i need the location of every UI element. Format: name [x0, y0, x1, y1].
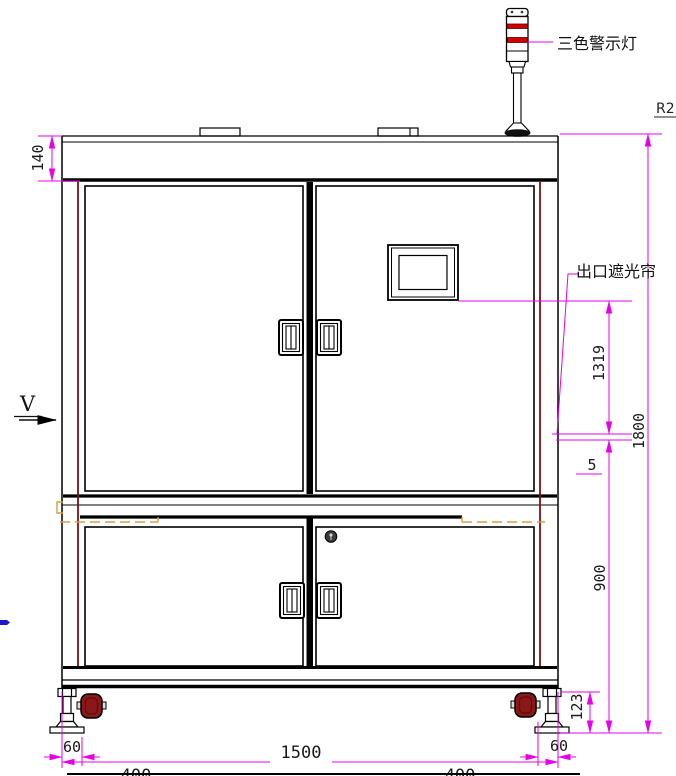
- beacon-red-band: [507, 38, 527, 43]
- right-leveling-foot: [535, 689, 569, 734]
- tower-light-label: 三色警示灯: [557, 34, 637, 53]
- upper-right-door: [316, 186, 534, 491]
- lower-center-post: [307, 517, 314, 667]
- dim-overall-width: 1500: [281, 743, 322, 763]
- handle-lower-left: [280, 583, 304, 618]
- blue-edge-mark: [0, 620, 10, 625]
- dim-left-offset: 60: [63, 738, 81, 756]
- beacon-cap-dot: [511, 11, 514, 14]
- left-leveling-foot: [50, 689, 84, 734]
- dim-overall-height: 1800: [630, 413, 648, 449]
- dim-lower-span: 900: [591, 564, 609, 591]
- left-caster-wheel: [77, 694, 106, 718]
- top-fitting: [378, 128, 418, 136]
- handle-upper-right: [317, 320, 341, 355]
- corner-note-label: R2: [656, 101, 675, 117]
- dimension-lines: [38, 134, 662, 768]
- handle-lower-right: [317, 583, 341, 618]
- dim-upper-span: 1319: [590, 345, 608, 381]
- view-marker-label: V: [19, 392, 36, 416]
- handle-upper-left: [279, 320, 303, 355]
- right-caster-wheel: [511, 693, 540, 717]
- beacon-adapter-base: [512, 67, 524, 73]
- beacon-pole: [514, 73, 522, 123]
- dim-top-band: 140: [29, 144, 47, 171]
- light-curtain-label: 出口遮光帘: [576, 262, 656, 281]
- lower-left-door: [85, 527, 303, 666]
- lower-right-door: [316, 527, 534, 666]
- beacon-adapter: [509, 62, 526, 68]
- beacon-cap: [507, 9, 529, 17]
- beacon-red-band: [507, 24, 527, 29]
- dim-foot-height: 123: [568, 693, 586, 720]
- lock-icon: [325, 531, 337, 543]
- light-curtain-leader: [557, 274, 578, 434]
- top-fitting: [200, 128, 240, 136]
- hmi-screen-display: [399, 256, 447, 290]
- tower-light-icon: [505, 9, 531, 137]
- hmi-screen: [388, 245, 458, 300]
- upper-left-door: [85, 186, 303, 491]
- front-view-drawing: 三色警示灯 R2: [0, 0, 676, 776]
- dim-right-offset: 60: [550, 737, 568, 755]
- beacon-cap-dot: [521, 11, 524, 14]
- upper-center-post: [307, 182, 314, 494]
- dim-gap: 5: [587, 456, 596, 474]
- technical-drawing-canvas: 三色警示灯 R2: [0, 0, 676, 776]
